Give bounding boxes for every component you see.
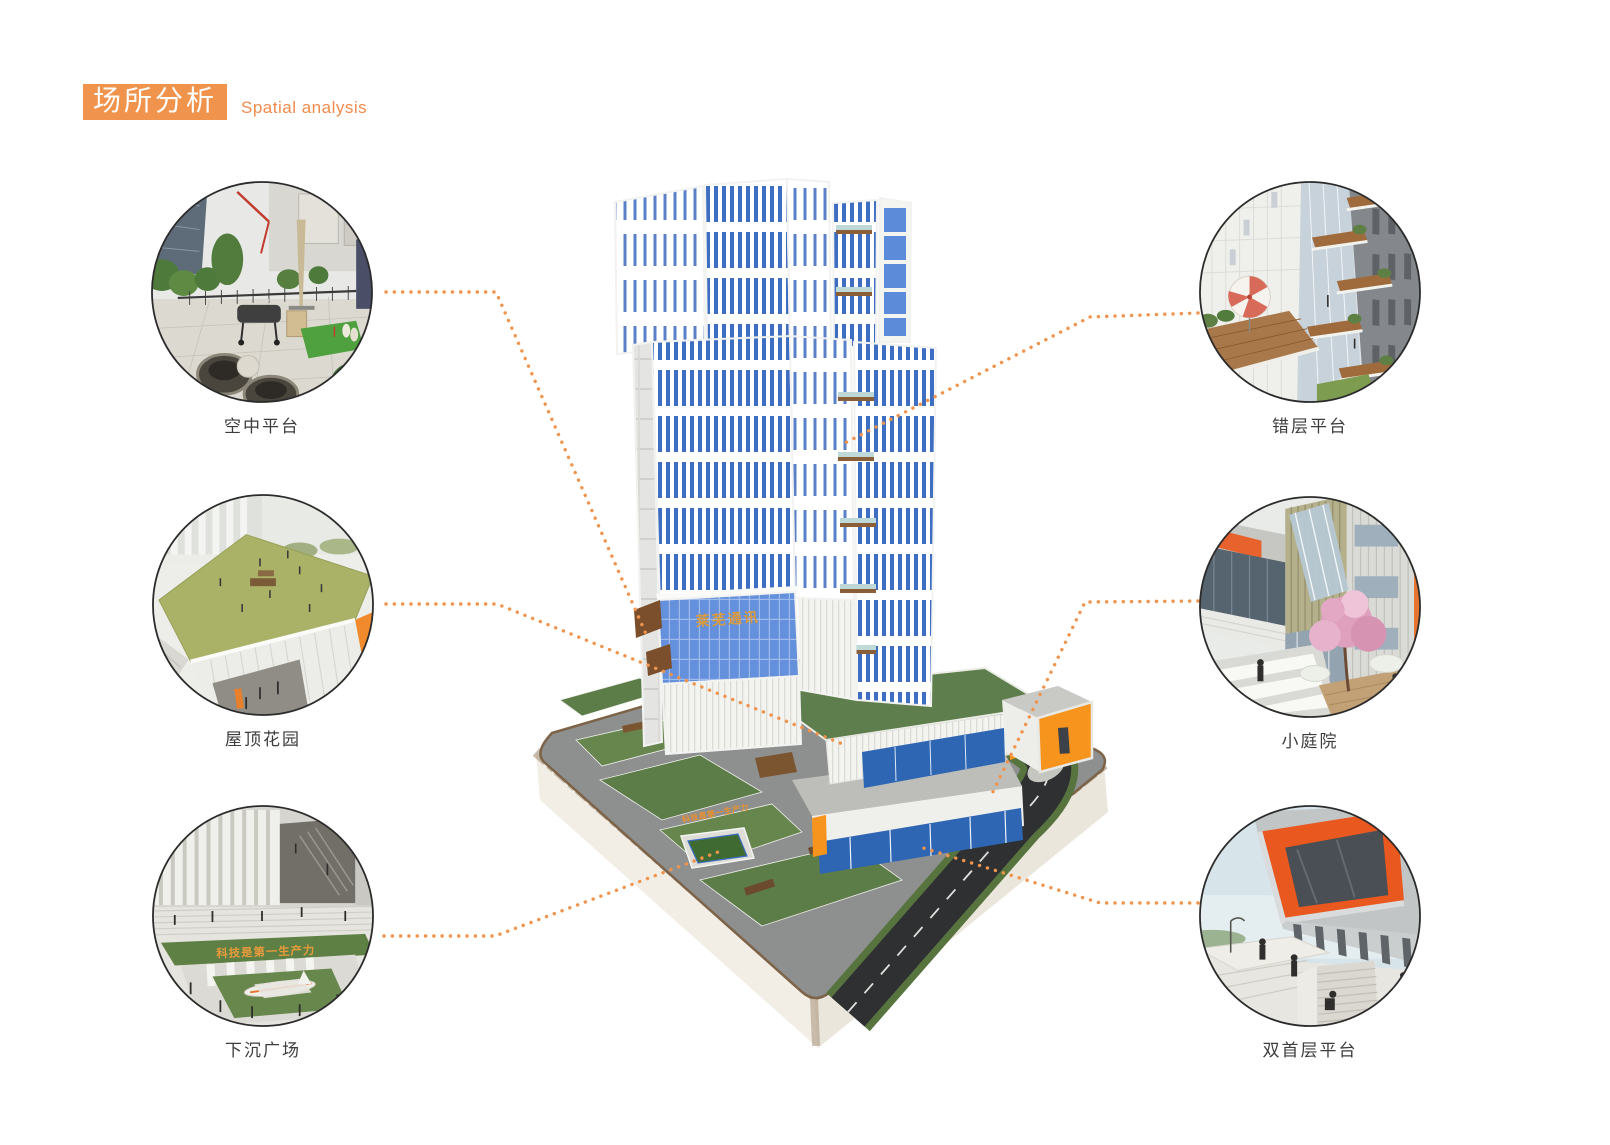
callout-label: 小庭院 xyxy=(1198,727,1422,752)
stairs xyxy=(1297,961,1378,1028)
callout-small-courtyard: 小庭院 xyxy=(1198,495,1422,752)
annex-orange-door xyxy=(812,815,827,857)
tower xyxy=(615,179,936,754)
callout-label: 下沉广场 xyxy=(151,1036,375,1061)
connector-sky-platform xyxy=(386,292,646,634)
callout-label: 空中平台 xyxy=(150,412,374,437)
callout-sunken-plaza: 科技是第一生产力 下沉广场 xyxy=(151,804,375,1061)
tower-top-mid-panel xyxy=(705,179,790,346)
tower-base-louver xyxy=(662,676,801,754)
callout-label: 错层平台 xyxy=(1198,412,1422,437)
small-courtyard-image xyxy=(1198,495,1422,719)
callout-roof-garden: 屋顶花园 xyxy=(151,493,375,750)
tower-top-panel-3 xyxy=(787,179,831,346)
callout-sky-platform: 空中平台 xyxy=(150,180,374,437)
tower-top-left-panel xyxy=(615,186,705,354)
callout-label: 双首层平台 xyxy=(1198,1036,1422,1061)
tower-glass-band xyxy=(658,592,799,684)
double-ground-platform-image xyxy=(1198,804,1422,1028)
tower-base-louver-2 xyxy=(799,598,857,700)
callout-label: 屋顶花园 xyxy=(151,725,375,750)
callout-staggered-platform: 错层平台 xyxy=(1198,180,1422,437)
callout-double-ground-platform: 双首层平台 xyxy=(1198,804,1422,1061)
staggered-platform-image xyxy=(1198,180,1422,404)
tower-top-column xyxy=(833,200,877,347)
roof-garden-image xyxy=(151,493,375,717)
spatial-analysis-page: 场所分析 Spatial analysis xyxy=(0,0,1610,1145)
sky-platform-image xyxy=(150,180,374,404)
tower-mid-right xyxy=(790,336,854,600)
sunken-plaza-image: 科技是第一生产力 xyxy=(151,804,375,1028)
tower-mid-left xyxy=(652,336,795,606)
